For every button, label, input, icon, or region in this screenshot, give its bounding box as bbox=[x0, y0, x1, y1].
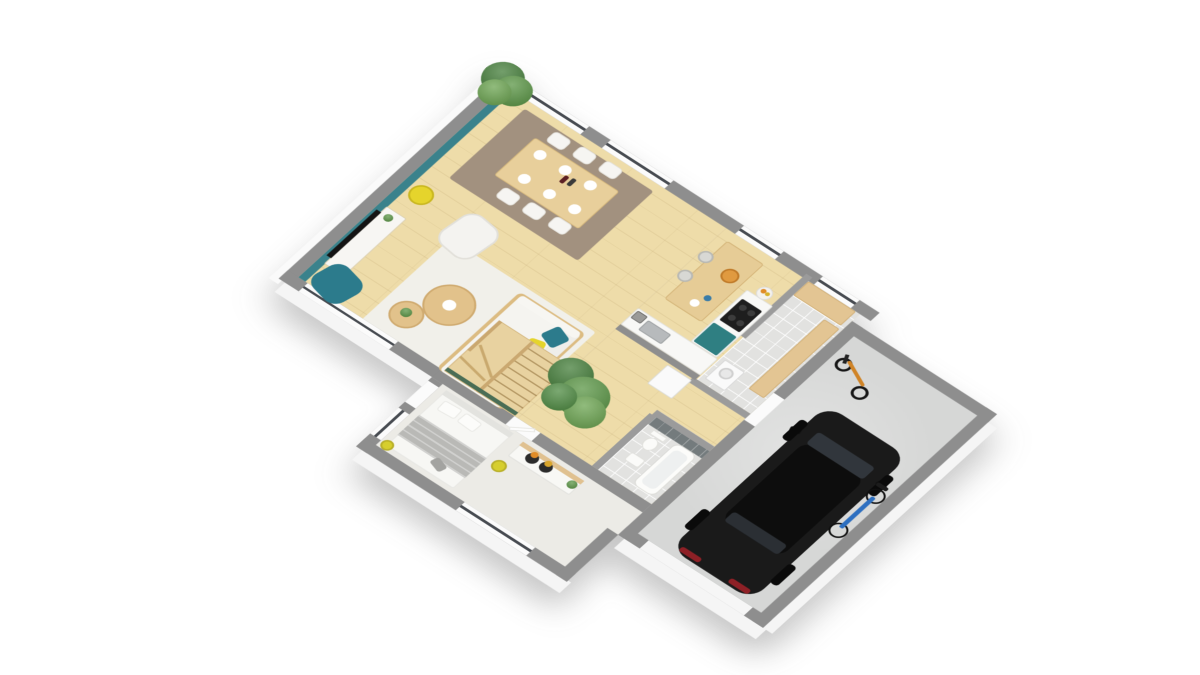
floorplan-render-canvas bbox=[0, 0, 1200, 675]
floorplan-3d-render bbox=[184, 72, 1026, 675]
